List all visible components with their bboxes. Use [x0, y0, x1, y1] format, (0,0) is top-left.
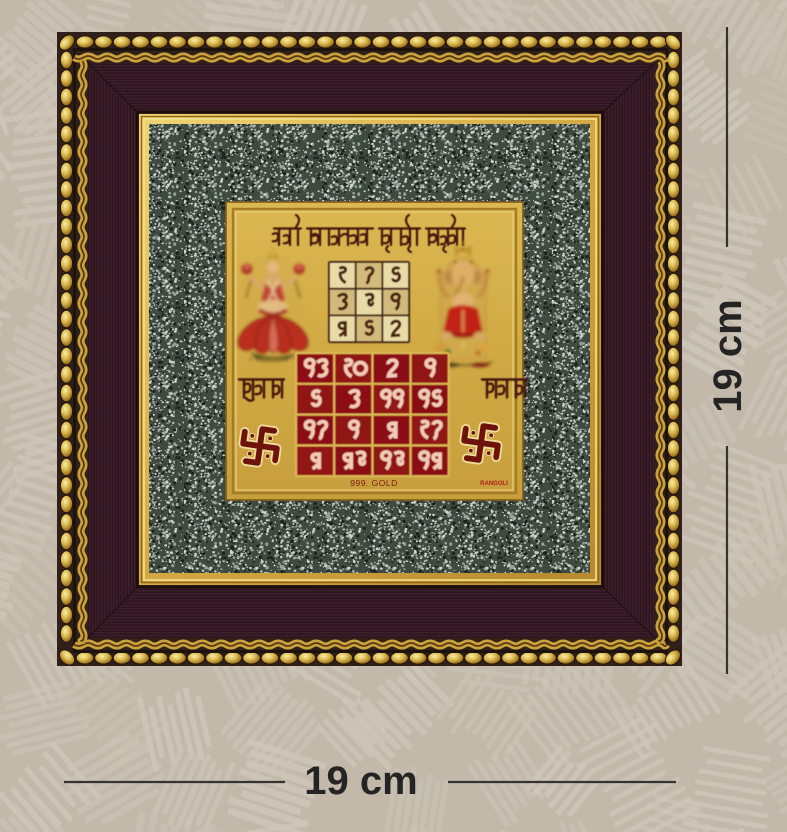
- svg-text:999. GOLD: 999. GOLD: [350, 478, 398, 488]
- svg-text:RANGOLI: RANGOLI: [480, 481, 508, 487]
- svg-text:19 cm: 19 cm: [706, 299, 750, 412]
- svg-text:19 cm: 19 cm: [304, 759, 417, 803]
